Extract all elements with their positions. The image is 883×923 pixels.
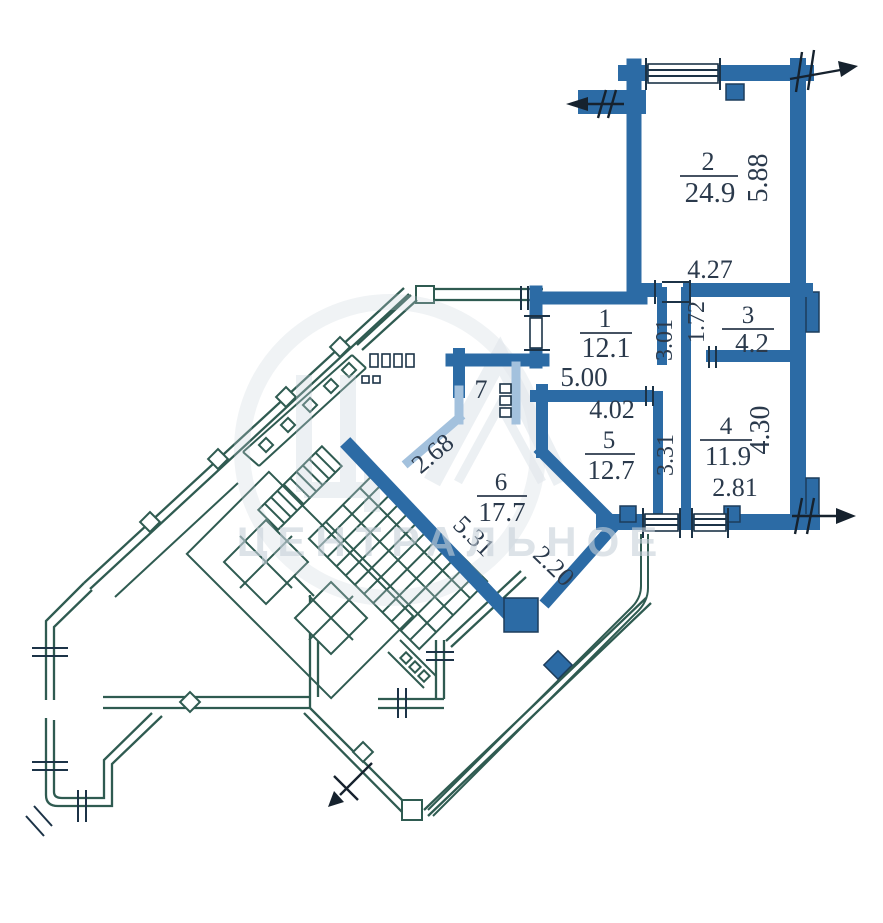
arrow-bottom-left — [328, 763, 372, 807]
dim-room3-height: 1.72 — [684, 301, 710, 343]
dim-shaft-upper: 3.01 — [652, 319, 678, 361]
dim-room5-width: 4.02 — [589, 395, 635, 424]
dim-room2-height: 5.88 — [743, 154, 774, 203]
room-label-1: 1 12.1 — [580, 304, 632, 364]
opening-room1-left — [524, 316, 550, 350]
window-room4-bottom — [692, 508, 728, 538]
room-area: 12.7 — [587, 455, 634, 485]
room-number: 5 — [603, 427, 616, 454]
room-label-3: 3 4.2 — [722, 302, 774, 358]
bottom-tip-walls — [304, 598, 651, 820]
room-label-2: 2 24.9 — [680, 147, 738, 209]
room-label-7: 7 — [475, 375, 488, 404]
section-arrows — [328, 50, 858, 807]
room-area: 4.2 — [735, 328, 769, 358]
left-wing-walls — [26, 583, 162, 836]
wall-bump — [726, 84, 744, 100]
floor-plan-page: 1 12.1 2 24.9 3 4.2 4 11.9 5 12.7 — [0, 0, 883, 923]
wall-pillar — [806, 292, 819, 332]
dim-room1-width: 5.00 — [560, 362, 607, 392]
room-number: 3 — [742, 302, 755, 329]
floor-plan-canvas: 1 12.1 2 24.9 3 4.2 4 11.9 5 12.7 — [0, 0, 883, 923]
wall-pillar — [504, 598, 538, 632]
dim-room4-width: 2.81 — [712, 473, 758, 502]
dim-room4-height: 4.30 — [745, 406, 776, 455]
room-number: 1 — [599, 304, 612, 333]
room-label-5: 5 12.7 — [585, 427, 635, 485]
room-area: 12.1 — [582, 333, 631, 364]
room-number: 2 — [702, 147, 715, 176]
window-room2-top — [646, 58, 720, 90]
room-labels: 1 12.1 2 24.9 3 4.2 4 11.9 5 12.7 — [475, 147, 775, 527]
room-area: 24.9 — [685, 177, 736, 209]
dim-shaft-lower: 3.31 — [653, 434, 679, 476]
room-number: 4 — [720, 413, 733, 440]
vent-boxes — [362, 354, 414, 383]
watermark-text: ЦЕНТРАЛЬНОЕ — [237, 518, 668, 565]
room-number: 6 — [495, 469, 508, 496]
balcony-pillar — [544, 651, 572, 679]
dim-room2-width: 4.27 — [687, 255, 733, 284]
